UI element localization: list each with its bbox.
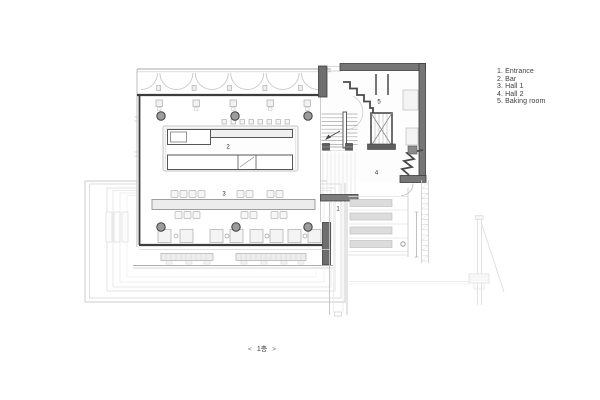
legend: 1. Entrance 2. Bar 3. Hall 1 4. Hall 2 5… [497,68,545,106]
legend-item-baking-room: 5. Baking room [497,98,545,106]
next-floor-button[interactable]: > [272,346,276,353]
legend-item-entrance: 1. Entrance [497,68,545,76]
legend-item-hall-1: 3. Hall 1 [497,83,545,91]
bar-counter [163,126,298,171]
legend-item-bar: 2. Bar [497,76,545,84]
dumbwaiter-shaft [368,113,396,150]
portfolio-page: 1 2 3 4 5 1. Entrance 2. Bar 3. Hall 1 4… [0,0,600,400]
exterior-stairs [348,180,429,263]
south-tables [158,230,321,243]
prev-floor-button[interactable]: < [248,346,252,353]
floor-label: 1층 [257,344,267,354]
floor-plan: 1 2 3 4 5 [0,0,600,400]
legend-item-hall-2: 4. Hall 2 [497,91,545,99]
floor-pager: < 1층 > [238,344,286,354]
room-label-entrance: 1 [336,207,340,213]
